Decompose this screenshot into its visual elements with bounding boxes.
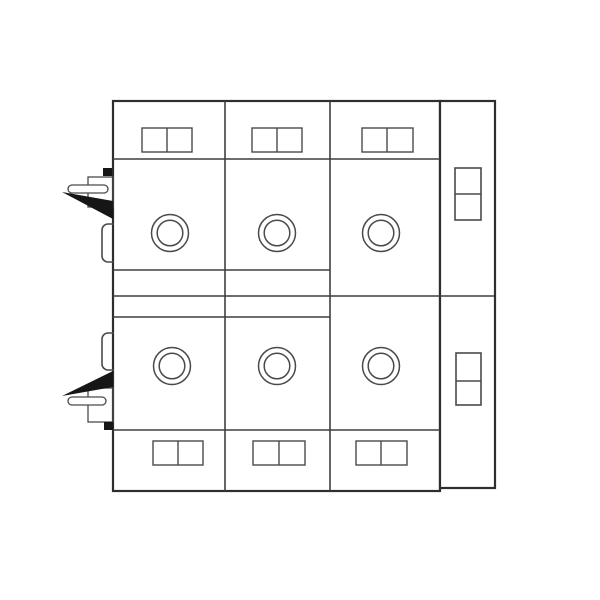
bottom-clip-stop-block <box>104 422 113 430</box>
technical-drawing <box>0 0 600 600</box>
top-clip-stop-block <box>103 168 112 176</box>
page <box>0 0 600 600</box>
top-clip-lever <box>68 185 108 193</box>
bottom-clip-lever <box>68 397 106 405</box>
side-channel-outline <box>440 101 495 488</box>
